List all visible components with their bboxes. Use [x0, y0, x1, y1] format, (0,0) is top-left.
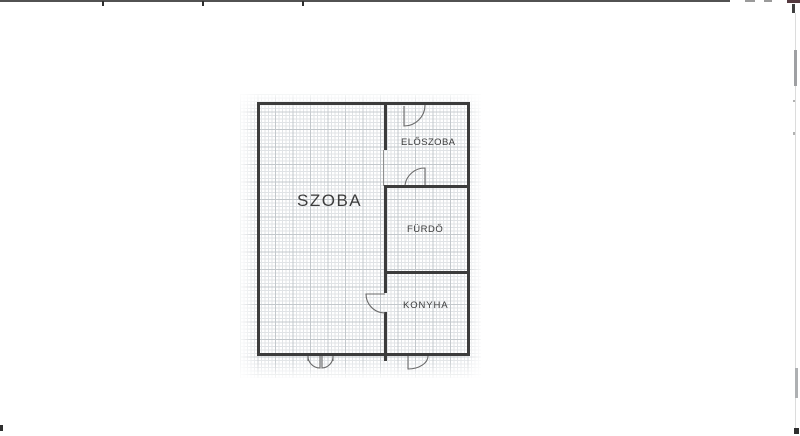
- room-label-furdo: FÜRDŐ: [407, 225, 443, 235]
- scanned-floor-plan-page: SZOBA ELŐSZOBA FÜRDŐ KONYHA: [0, 0, 800, 436]
- room-label-szoba: SZOBA: [297, 192, 362, 209]
- room-label-eloszoba: ELŐSZOBA: [401, 138, 455, 148]
- room-label-konyha: KONYHA: [403, 301, 449, 311]
- door-double-szoba-bottom: [308, 356, 333, 368]
- door-arc-eloszoba-furdo: [405, 168, 425, 185]
- door-arc-szoba-konyha: [366, 294, 385, 313]
- door-symbols: [0, 0, 800, 436]
- door-arc-konyha-bottom: [408, 356, 428, 369]
- door-arc-eloszoba-top: [404, 105, 425, 126]
